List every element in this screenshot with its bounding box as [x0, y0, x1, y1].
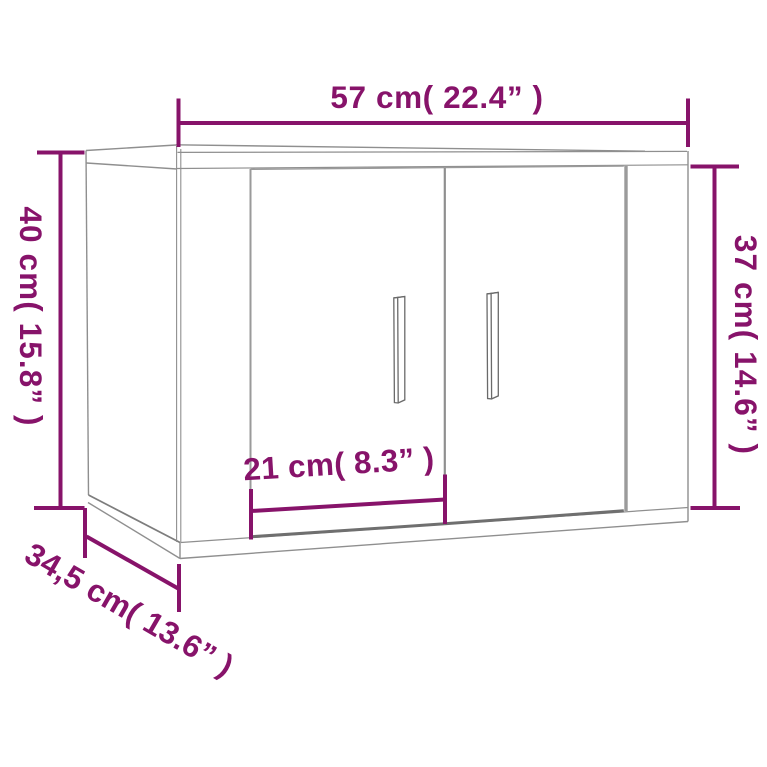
svg-text:37 cm( 14.6” ): 37 cm( 14.6” )	[728, 235, 764, 455]
svg-text:40 cm( 15.8” ): 40 cm( 15.8” )	[13, 206, 49, 426]
svg-text:57 cm( 22.4” ): 57 cm( 22.4” )	[330, 79, 543, 115]
